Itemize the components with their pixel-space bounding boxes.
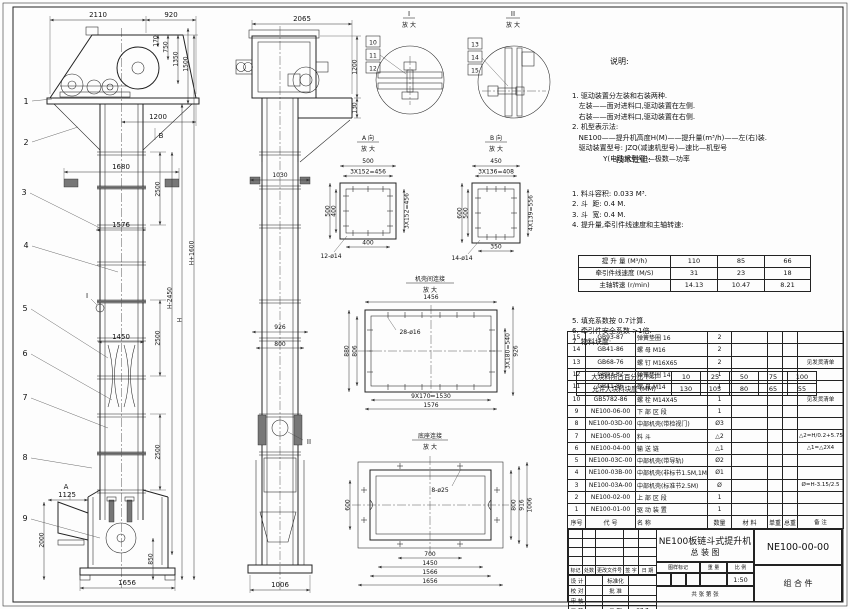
table-cell [768, 430, 783, 442]
table-cell [629, 576, 657, 586]
table-cell [783, 393, 798, 405]
dim-label: 450 [490, 158, 502, 165]
detail-ref-label: I [86, 292, 88, 300]
table-row: 提 升 量 (M³/h)1108566 [579, 255, 811, 267]
col-header: 数量 [708, 516, 732, 528]
dim-label: 700 [424, 551, 436, 558]
dim-label: 1125 [58, 491, 76, 499]
table-cell [732, 467, 768, 479]
signature-table: 设 计标准化校 对批 准审 核工 艺日 期97.7 [568, 575, 657, 609]
dim-label: 500 [463, 207, 470, 219]
table-cell [732, 405, 768, 417]
table-cell: 4 [568, 467, 586, 479]
parts-list-table: 15GB93-87弹簧垫圈 16214GB41-86螺 母 M16213GB68… [567, 331, 844, 529]
table-cell [586, 596, 603, 606]
table-cell: 螺 母 M16 [636, 344, 708, 356]
table-cell [624, 530, 639, 539]
table-cell: 1 [708, 491, 732, 503]
table-cell: △2 [708, 430, 732, 442]
capacity-table: 提 升 量 (M³/h)1108566牵引件线速度 (M/S)312318主轴转… [578, 255, 811, 292]
table-cell: 上 部 区 段 [636, 491, 708, 503]
table-cell [596, 530, 624, 539]
table-cell [624, 548, 639, 557]
table-cell [732, 479, 768, 491]
table-cell: 14 [568, 344, 586, 356]
table-cell [732, 356, 768, 368]
drawing-title-line1: NE100板链斗式提升机 [659, 534, 752, 547]
table-cell: NE100-05-00 [586, 430, 636, 442]
stamp-cell [671, 573, 686, 586]
table-cell: 1 [708, 504, 732, 516]
table-cell: 85 [718, 255, 765, 267]
table-cell [798, 467, 844, 479]
table-cell: 中部机壳(非标节1.5M,1M) [636, 467, 708, 479]
table-cell: 12 [568, 368, 586, 380]
table-cell: 11 [568, 381, 586, 393]
dim-label: 1656 [118, 579, 136, 587]
dim-label: 170 [153, 35, 160, 47]
table-row: 12GB93-87弹簧垫圈 141 [568, 368, 844, 380]
table-row: 11GB41-86螺 母 M141 [568, 381, 844, 393]
detail-title: I [408, 10, 410, 18]
table-cell: 设 计 [569, 576, 586, 586]
detail-title: 机壳间连接 [415, 275, 445, 283]
table-cell: 2 [708, 332, 732, 344]
table-cell: 7 [568, 430, 586, 442]
table-cell: 110 [671, 255, 718, 267]
dim-label: 2500 [155, 330, 162, 345]
table-cell: 1 [708, 381, 732, 393]
table-row: 9NE100-06-00下 部 区 段1 [568, 405, 844, 417]
part-ref: 12 [369, 66, 377, 73]
table-cell [583, 530, 596, 539]
table-row: 7NE100-05-00料 斗△2△2=H/0.2+5.75 [568, 430, 844, 442]
dim-label: 800 [511, 499, 518, 511]
dim-label: 600 [345, 499, 352, 511]
dim-label: 920 [164, 11, 177, 19]
table-cell: NE100-03D-00 [586, 418, 636, 430]
table-cell: 主轴转速 (r/min) [579, 279, 671, 291]
table-cell [783, 442, 798, 454]
dim-label: 1456 [423, 294, 438, 301]
table-cell: GB93-87 [586, 332, 636, 344]
detail-subtitle: 放 大 [423, 443, 437, 451]
table-cell [569, 548, 583, 557]
detail-a-flange: A 向 放 大 500 3X152=456 500 400 3X152=456 … [320, 134, 410, 260]
dim-label: 4X139=556 [528, 195, 535, 231]
scale-value: 1:50 [727, 573, 754, 586]
detail-b-flange: B 向 放 大 450 3X136=408 600 500 4X139=556 … [451, 134, 534, 262]
table-cell [768, 504, 783, 516]
table-cell [783, 368, 798, 380]
table-cell: 下 部 区 段 [636, 405, 708, 417]
table-cell: 驱 动 装 置 [636, 504, 708, 516]
table-cell: NE100-03A-00 [586, 479, 636, 491]
dim-label: 806 [352, 345, 359, 357]
part-ref: 13 [471, 42, 479, 49]
table-cell [732, 381, 768, 393]
table-row: 审 核 [569, 596, 657, 606]
dim-label: 1030 [272, 172, 287, 179]
detail-shell-connection: 机壳间连接 放 大 1456 880 806 3X180=540 926 9X1… [344, 275, 520, 409]
table-cell: 螺 钉 M16X65 [636, 356, 708, 368]
table-row: 校 对批 准 [569, 586, 657, 596]
table-cell: Ø2 [708, 454, 732, 466]
table-cell [639, 557, 657, 566]
table-cell [783, 504, 798, 516]
balloon: 4 [23, 241, 28, 250]
dim-label: H [177, 318, 184, 323]
col-header: 备 注 [798, 516, 844, 528]
table-row: 标记处数更改文件号签 字日 期 [569, 566, 657, 575]
dim-label: 2065 [293, 15, 311, 23]
table-cell: 校 对 [569, 586, 586, 596]
table-cell [569, 539, 583, 548]
table-row: 工 艺日 期97.7 [569, 606, 657, 609]
table-cell: Ø1 [708, 467, 732, 479]
detail-title: A 向 [362, 134, 374, 142]
table-cell [768, 467, 783, 479]
table-cell [768, 442, 783, 454]
stamp-cell [686, 573, 700, 586]
table-cell [768, 405, 783, 417]
table-cell: 审 核 [569, 596, 586, 606]
table-cell: 1 [708, 368, 732, 380]
table-cell: 提 升 量 (M³/h) [579, 255, 671, 267]
table-cell: 见发货清单 [798, 356, 844, 368]
table-cell: 螺 栓 M14X45 [636, 393, 708, 405]
table-cell: 10 [568, 393, 586, 405]
dim-label: 3X136=408 [478, 169, 514, 176]
table-cell: 3 [568, 479, 586, 491]
table-cell: GB93-87 [586, 368, 636, 380]
specs-items: 1. 料斗容积: 0.033 M³.2. 斗 距: 0.4 M.3. 斗 宽: … [572, 189, 844, 231]
table-cell [629, 596, 657, 606]
drawing-title-line2: 总 装 图 [690, 547, 719, 558]
table-cell: 66 [765, 255, 811, 267]
text-line: 1. 料斗容积: 0.033 M³. [572, 189, 844, 200]
col-header: 总重 [783, 516, 798, 528]
text-line: 4. 提升量,牵引件线速度和主轴转速: [572, 220, 844, 231]
table-cell [732, 344, 768, 356]
drawing-title: NE100板链斗式提升机 总 装 图 [656, 529, 754, 562]
table-cell: GB68-76 [586, 356, 636, 368]
parts-header-row: 序号 代 号 名 称 数量 材 料 单重 总重 备 注 [568, 516, 844, 528]
table-cell: 中部机壳(带导轨) [636, 454, 708, 466]
table-cell: 1 [568, 504, 586, 516]
dim-label: 1450 [112, 333, 130, 341]
hole-callout: 14-ø14 [451, 255, 472, 262]
table-row: 3NE100-03A-00中部机壳(标准节2.5M)ØØ=H-3.15/2.5 [568, 479, 844, 491]
table-cell: 1 [708, 393, 732, 405]
table-cell [596, 557, 624, 566]
dim-label: 1656 [422, 578, 437, 585]
table-cell [783, 467, 798, 479]
part-ref: 15 [471, 68, 479, 75]
detail-subtitle: 放 大 [361, 145, 375, 153]
dim-label: 800 [274, 341, 286, 348]
table-cell [569, 530, 583, 539]
view-b-marker: B [159, 132, 164, 140]
table-row: 牵引件线速度 (M/S)312318 [579, 267, 811, 279]
balloon: 1 [23, 97, 28, 106]
table-cell: 10.47 [718, 279, 765, 291]
table-cell: NE100-03C-00 [586, 454, 636, 466]
table-cell: Ø=H-3.15/2.5 [798, 479, 844, 491]
table-row: 4NE100-03B-00中部机壳(非标节1.5M,1M)Ø1 [568, 467, 844, 479]
table-cell: 弹簧垫圈 14 [636, 368, 708, 380]
table-cell: 标记 [569, 566, 583, 575]
table-cell [583, 557, 596, 566]
dim-label: 3X152=456 [350, 169, 386, 176]
stamp-scale-label: 比 例 [727, 562, 754, 573]
table-cell: 料 斗 [636, 430, 708, 442]
table-cell [783, 430, 798, 442]
table-cell [783, 356, 798, 368]
text-line: 3. 斗 宽: 0.4 M. [572, 210, 844, 221]
table-cell [639, 539, 657, 548]
table-cell [768, 418, 783, 430]
col-header: 名 称 [636, 516, 708, 528]
balloon: 8 [22, 453, 27, 462]
table-cell [768, 381, 783, 393]
dim-label: 880 [344, 345, 351, 357]
table-cell: 5 [568, 454, 586, 466]
assembly-type: 组 合 件 [754, 565, 842, 602]
table-cell [624, 539, 639, 548]
table-cell: 签 字 [624, 566, 639, 575]
table-row: 8NE100-03D-00中部机壳(带检视门)Ø3 [568, 418, 844, 430]
table-cell [783, 454, 798, 466]
table-cell: NE100-06-00 [586, 405, 636, 417]
table-cell [732, 393, 768, 405]
balloon: 2 [23, 138, 28, 147]
table-cell [629, 586, 657, 596]
balloon: 6 [22, 349, 27, 358]
table-row: 15GB93-87弹簧垫圈 162 [568, 332, 844, 344]
text-line: 2. 斗 距: 0.4 M. [572, 199, 844, 210]
part-ref: 10 [369, 40, 377, 47]
table-cell: 31 [671, 267, 718, 279]
view-a-marker: A [64, 483, 69, 491]
dim-label: 1006 [527, 497, 534, 512]
balloon: 9 [22, 514, 27, 523]
col-header: 代 号 [586, 516, 636, 528]
table-cell [798, 418, 844, 430]
table-cell [732, 504, 768, 516]
table-cell [639, 548, 657, 557]
table-cell [569, 557, 583, 566]
table-cell [639, 530, 657, 539]
hole-callout: 12-ø14 [320, 253, 341, 260]
dim-label: 926 [513, 345, 520, 357]
dim-label: 750 [163, 41, 170, 53]
table-cell: 批 准 [603, 586, 629, 596]
notes-heading: 说明: [572, 57, 842, 68]
table-cell [732, 368, 768, 380]
table-cell [732, 442, 768, 454]
dim-label: 2500 [155, 181, 162, 196]
table-cell [798, 405, 844, 417]
table-cell: 日 期 [603, 606, 629, 609]
table-cell: 2 [708, 356, 732, 368]
table-row: 主轴转速 (r/min)14.1310.478.21 [579, 279, 811, 291]
table-cell [783, 491, 798, 503]
dim-label: 3X180=540 [505, 333, 512, 369]
dim-label: 9X170=1530 [411, 393, 451, 400]
table-cell [596, 539, 624, 548]
table-row: 6NE100-04-00输 送 链△1△1=△2X4 [568, 442, 844, 454]
table-cell: 标准化 [603, 576, 629, 586]
change-record-table: 标记处数更改文件号签 字日 期 [568, 529, 657, 575]
dim-label: 3X152=456 [404, 193, 411, 229]
dim-label: 130 [352, 102, 359, 114]
table-cell: Ø [708, 479, 732, 491]
dim-label: 500 [362, 158, 374, 165]
dim-label: 1566 [422, 569, 437, 576]
table-cell [768, 393, 783, 405]
dim-label: 2110 [89, 11, 107, 19]
dim-label: 1350 [173, 51, 180, 66]
hole-callout: 8-ø25 [431, 487, 448, 494]
table-cell: 处数 [583, 566, 596, 575]
table-row [569, 557, 657, 566]
dim-label: 1450 [422, 560, 437, 567]
table-row: 10GB5782-86螺 栓 M14X451见发货清单 [568, 393, 844, 405]
sheet-count: 共 张 第 张 [656, 586, 754, 602]
table-cell [798, 368, 844, 380]
dim-label: 2500 [155, 444, 162, 459]
table-cell: 14.13 [671, 279, 718, 291]
table-cell [583, 548, 596, 557]
detail-title: II [511, 10, 515, 18]
table-cell: GB5782-86 [586, 393, 636, 405]
detail-i: I 放 大 10 11 12 [366, 10, 444, 114]
stamp-cell [656, 573, 671, 586]
table-cell: 6 [568, 442, 586, 454]
col-header: 材 料 [732, 516, 768, 528]
title-block: 标记处数更改文件号签 字日 期 设 计标准化校 对批 准审 核工 艺日 期97.… [567, 528, 843, 602]
table-cell [768, 454, 783, 466]
table-cell: 2 [568, 491, 586, 503]
table-row: 1NE100-01-00驱 动 装 置1 [568, 504, 844, 516]
table-cell [768, 368, 783, 380]
dim-label: 1200 [149, 113, 167, 121]
table-cell [768, 332, 783, 344]
table-row [569, 539, 657, 548]
table-cell: 13 [568, 356, 586, 368]
table-cell: 中部机壳(带检视门) [636, 418, 708, 430]
drawing-number: NE100-00-00 [754, 529, 842, 565]
table-row: 14GB41-86螺 母 M162 [568, 344, 844, 356]
table-cell [768, 491, 783, 503]
table-cell [783, 344, 798, 356]
table-cell: △2=H/0.2+5.75 [798, 430, 844, 442]
dim-label: 1200 [352, 59, 359, 74]
stamp-weight-label: 重 量 [700, 562, 727, 573]
dim-label: 926 [274, 324, 286, 331]
table-row: 设 计标准化 [569, 576, 657, 586]
dim-label: 1006 [271, 581, 289, 589]
table-cell: NE100-04-00 [586, 442, 636, 454]
table-cell [732, 418, 768, 430]
table-cell [798, 332, 844, 344]
table-cell [768, 479, 783, 491]
table-cell [732, 332, 768, 344]
text-line: 右装——面对进料口,驱动装置在右侧. [572, 112, 842, 123]
table-cell [783, 332, 798, 344]
dim-label: 1500 [183, 56, 190, 71]
table-cell: 牵引件线速度 (M/S) [579, 267, 671, 279]
table-cell: NE100-01-00 [586, 504, 636, 516]
table-cell: Ø3 [708, 418, 732, 430]
table-cell: 中部机壳(标准节2.5M) [636, 479, 708, 491]
col-header: 序号 [568, 516, 586, 528]
table-cell: GB41-86 [586, 344, 636, 356]
table-cell: △1 [708, 442, 732, 454]
table-cell [783, 479, 798, 491]
table-cell: 弹簧垫圈 16 [636, 332, 708, 344]
detail-subtitle: 放 大 [402, 21, 416, 29]
col-header: 单重 [768, 516, 783, 528]
table-cell: 9 [568, 405, 586, 417]
table-cell [732, 430, 768, 442]
dim-label: H+1600 [189, 240, 196, 265]
table-cell: 输 送 链 [636, 442, 708, 454]
title-block-left: 标记处数更改文件号签 字日 期 设 计标准化校 对批 准审 核工 艺日 期97.… [568, 529, 656, 602]
table-cell [768, 344, 783, 356]
table-row [569, 530, 657, 539]
table-cell: 日 期 [639, 566, 657, 575]
table-cell [624, 557, 639, 566]
table-cell: 8.21 [765, 279, 811, 291]
table-cell [798, 381, 844, 393]
table-cell [732, 454, 768, 466]
dim-label: 2000 [39, 532, 46, 547]
table-cell [798, 454, 844, 466]
table-cell: NE100-03B-00 [586, 467, 636, 479]
detail-subtitle: 放 大 [506, 21, 520, 29]
dim-label: 1680 [112, 163, 130, 171]
table-cell [798, 504, 844, 516]
table-cell [586, 606, 603, 609]
text-line: 左装——面对进料口,驱动装置在左侧. [572, 101, 842, 112]
table-cell [583, 539, 596, 548]
detail-subtitle: 放 大 [489, 145, 503, 153]
text-line: 5. 填充系数按 0.7计算. [572, 316, 844, 327]
detail-title: B 向 [490, 134, 502, 142]
side-view: II 2065 1200 130 1030 926 800 1006 [236, 15, 361, 593]
detail-subtitle: 放 大 [423, 286, 437, 294]
table-cell: 15 [568, 332, 586, 344]
table-row: 13GB68-76螺 钉 M16X652见发货清单 [568, 356, 844, 368]
table-cell: 2 [708, 344, 732, 356]
table-cell [798, 491, 844, 503]
table-cell: 螺 母 M14 [636, 381, 708, 393]
table-cell [798, 344, 844, 356]
balloon: 3 [21, 188, 26, 197]
hole-callout: 28-ø16 [399, 329, 420, 336]
weight-value-cell [700, 573, 727, 586]
table-cell: 见发货清单 [798, 393, 844, 405]
part-ref: 14 [471, 55, 479, 62]
table-cell [603, 596, 629, 606]
table-cell [783, 418, 798, 430]
table-cell [783, 381, 798, 393]
table-row: 5NE100-03C-00中部机壳(带导轨)Ø2 [568, 454, 844, 466]
table-cell: △1=△2X4 [798, 442, 844, 454]
balloon: 7 [22, 393, 27, 402]
